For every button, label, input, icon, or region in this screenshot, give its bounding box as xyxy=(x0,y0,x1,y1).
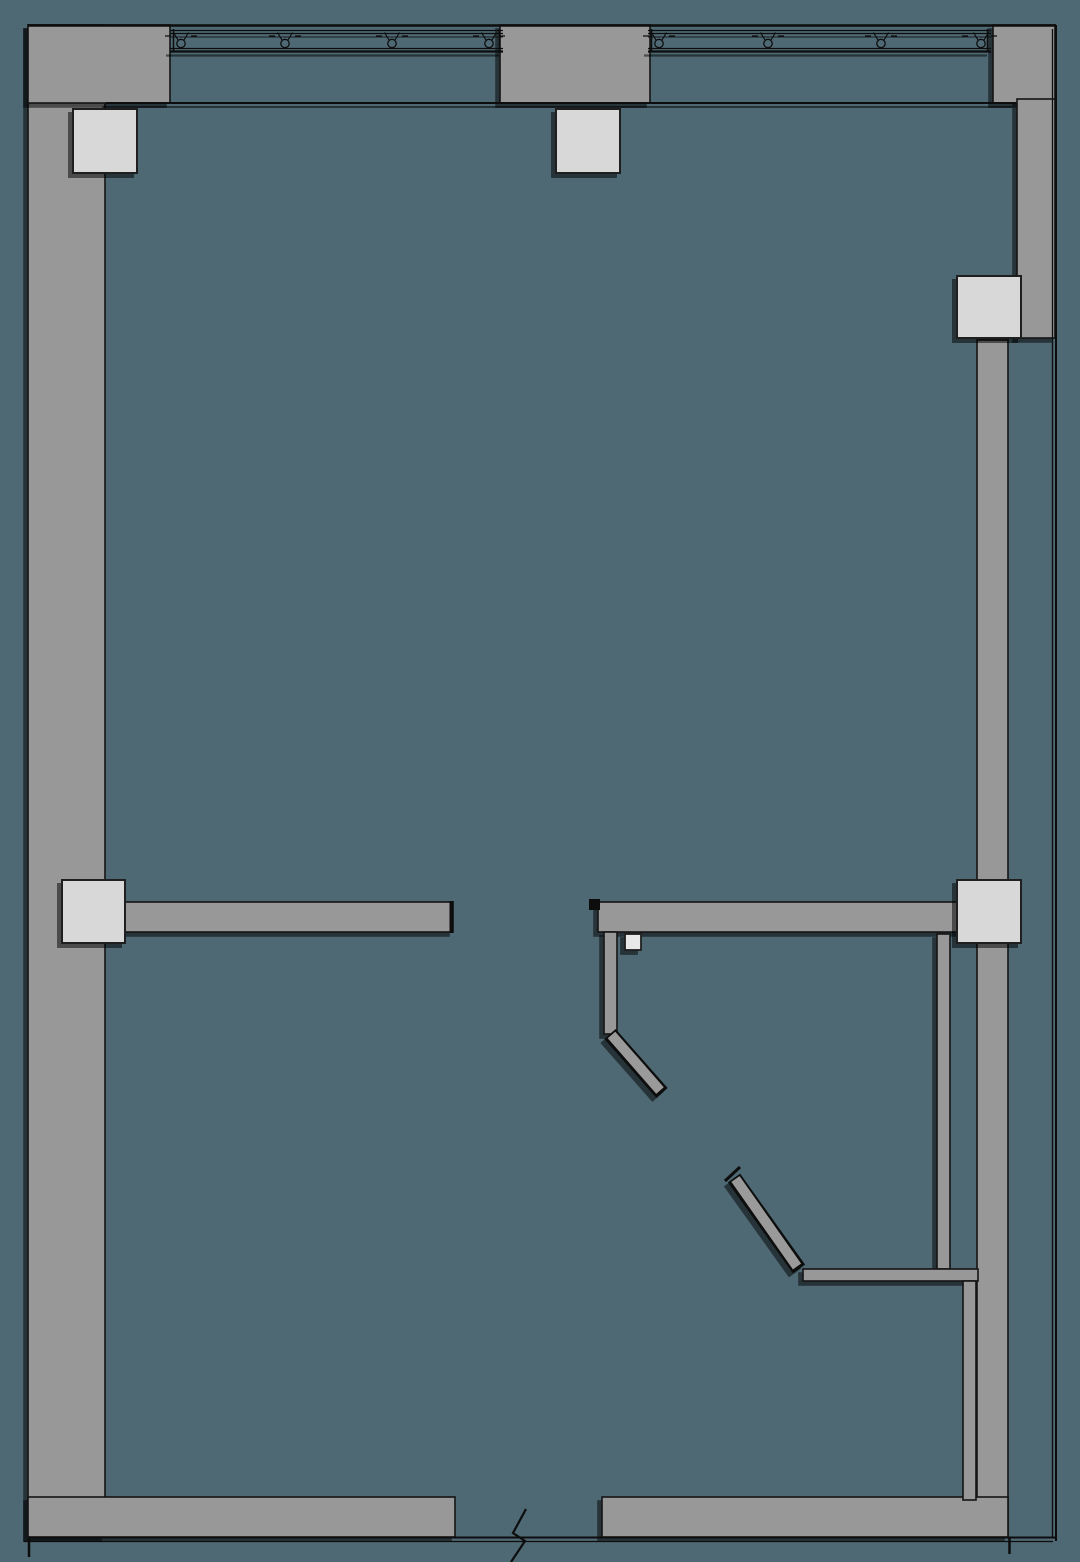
column-top-left xyxy=(73,109,137,173)
wall-bottom-left xyxy=(28,1497,455,1537)
wall-shaft-horizontal xyxy=(803,1269,978,1281)
door-jamb-block xyxy=(625,934,641,950)
floor-plan-stage xyxy=(0,0,1080,1562)
floor-plan-svg xyxy=(0,0,1080,1562)
column-right-middle xyxy=(957,880,1021,943)
wall-top-right-corner xyxy=(993,25,1055,103)
wall-shaft-lower xyxy=(963,1281,976,1500)
wall-main-left-segment xyxy=(106,902,453,932)
wall-bottom-right xyxy=(602,1497,1008,1537)
wall-shaft-upper xyxy=(937,934,950,1269)
column-top-center xyxy=(556,109,620,173)
column-right-upper xyxy=(957,276,1021,338)
canvas-background xyxy=(0,0,1080,1562)
wall-main-right-segment xyxy=(598,902,980,932)
column-left-middle xyxy=(62,880,125,943)
wall-left-band xyxy=(28,25,105,1537)
wall-top-center-pier xyxy=(500,25,650,103)
main-wall-right-start-cap xyxy=(589,899,600,910)
wall-partition-door1 xyxy=(604,932,617,1034)
wall-right-upper xyxy=(1017,99,1055,338)
wall-top-left-corner xyxy=(28,25,170,103)
